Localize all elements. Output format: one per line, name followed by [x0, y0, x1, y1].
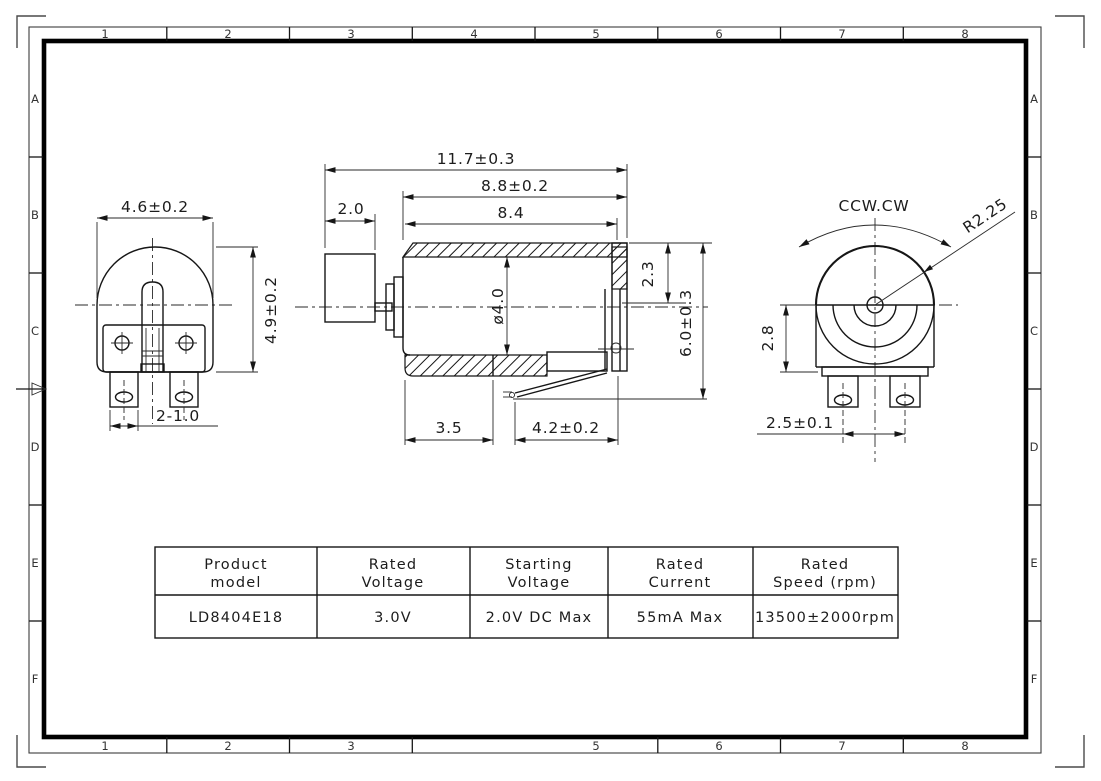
dim-front-legs: 2-1.0	[110, 407, 218, 431]
product-model-value: LD8404E18	[189, 610, 284, 626]
left-centering-mark	[16, 383, 46, 395]
table-header: Rated	[656, 557, 704, 573]
eccentric-weight	[325, 254, 375, 322]
grid-label: 3	[347, 27, 354, 41]
table-header: Rated	[369, 557, 417, 573]
rotation-label: CCW.CW	[838, 197, 909, 215]
dim-side-height-label: 6.0±0.3	[677, 289, 695, 357]
grid-label: D	[31, 440, 40, 454]
grid-label: F	[32, 672, 39, 686]
grid-label: C	[1030, 324, 1038, 338]
table-header: Voltage	[362, 575, 425, 591]
table-header: Rated	[801, 557, 849, 573]
grid-label: 5	[592, 739, 599, 753]
table-header: Current	[649, 575, 712, 591]
trim-mark-top-left	[17, 16, 46, 48]
grid-label: E	[31, 556, 38, 570]
bottom-ruler-ticks	[167, 737, 904, 753]
grid-label: 6	[715, 27, 722, 41]
bracket-hole-left	[111, 332, 133, 354]
grid-label: 7	[838, 739, 845, 753]
rear-view: CCW.CW R2.25 2.8 2.5±0.1	[757, 195, 1015, 462]
technical-drawing: 1 2 3 4 5 6 7 8 1 2 3 5 6 7 8 A B C D E …	[0, 0, 1101, 781]
drawing-sheet: 1 2 3 4 5 6 7 8 1 2 3 5 6 7 8 A B C D E …	[0, 0, 1101, 781]
table-header: Voltage	[508, 575, 571, 591]
dim-front-width: 4.6±0.2	[97, 198, 213, 298]
starting-voltage-value: 2.0V DC Max	[486, 610, 593, 626]
trim-mark-bottom-left	[17, 735, 46, 767]
dim-rear-leg-pitch: 2.5±0.1	[757, 414, 905, 434]
dim-side-height: 6.0±0.3	[677, 243, 703, 399]
dim-rear-leg-pitch-label: 2.5±0.1	[766, 414, 834, 432]
table-header: Product	[204, 557, 267, 573]
grid-label: 6	[715, 739, 722, 753]
spec-table: Product model Rated Voltage Starting Vol…	[155, 547, 898, 638]
dim-side-terminal-label: 2.3	[639, 260, 657, 287]
grid-label: 1	[101, 739, 108, 753]
dim-radius-label: R2.25	[960, 195, 1011, 237]
grid-label: E	[1030, 556, 1037, 570]
grid-label: B	[31, 208, 39, 222]
bottom-ruler-labels: 1 2 3 5 6 7 8	[101, 739, 968, 753]
right-ruler-ticks	[1027, 157, 1041, 621]
grid-label: 5	[592, 27, 599, 41]
grid-label: C	[31, 324, 39, 338]
grid-label: F	[1031, 672, 1038, 686]
dim-side-lead: 4.2±0.2	[515, 376, 618, 445]
grid-label: 8	[961, 739, 968, 753]
dim-front-legs-label: 2-1.0	[156, 407, 200, 425]
sleeve-top-section	[403, 243, 627, 257]
rated-speed-value: 13500±2000rpm	[755, 610, 895, 626]
dim-side-body-label: 8.4	[497, 204, 524, 222]
grid-label: D	[1030, 440, 1039, 454]
grid-label: 7	[838, 27, 845, 41]
side-view: 11.7±0.3 8.8±0.2 8.4 2.0 ø4.0	[295, 150, 712, 445]
grid-label: A	[31, 92, 39, 106]
sleeve-bottom-section	[405, 355, 547, 376]
body-left-edge	[403, 257, 410, 355]
grid-label: 2	[224, 27, 231, 41]
trim-mark-top-right	[1055, 16, 1084, 48]
dim-side-lead-label: 4.2±0.2	[532, 419, 600, 437]
dim-rear-body-height: 2.8	[759, 305, 818, 372]
table-values: LD8404E18 3.0V 2.0V DC Max 55mA Max 1350…	[189, 610, 895, 626]
grid-label: 2	[224, 739, 231, 753]
table-header: model	[210, 575, 261, 591]
grid-label: 3	[347, 739, 354, 753]
dim-side-weight: 2.0	[325, 200, 375, 250]
grid-label: 4	[470, 27, 477, 41]
dim-side-terminal: 2.3	[622, 243, 712, 303]
inner-border	[44, 41, 1026, 737]
dim-side-weight-label: 2.0	[337, 200, 364, 218]
grid-label: B	[1030, 208, 1038, 222]
table-headers: Product model Rated Voltage Starting Vol…	[204, 557, 877, 591]
motor-body-outline	[97, 305, 213, 372]
grid-label: 8	[961, 27, 968, 41]
dim-front-height-label: 4.9±0.2	[262, 276, 280, 344]
grid-label: A	[1030, 92, 1038, 106]
front-view: 4.6±0.2 4.9±0.2 2-1.0	[75, 198, 280, 431]
dim-front-height: 4.9±0.2	[216, 247, 280, 372]
drawing-frame: 1 2 3 4 5 6 7 8 1 2 3 5 6 7 8 A B C D E …	[16, 16, 1084, 767]
dim-side-body: 8.4	[405, 204, 617, 240]
dim-side-sleeve: 3.5	[405, 380, 493, 445]
grid-label: 1	[101, 27, 108, 41]
table-header: Speed (rpm)	[773, 575, 877, 591]
dim-front-width-label: 4.6±0.2	[121, 198, 189, 216]
dim-side-total-label: 11.7±0.3	[437, 150, 516, 168]
rated-current-value: 55mA Max	[637, 610, 724, 626]
dim-side-diameter-label: ø4.0	[489, 287, 507, 324]
outer-border	[29, 27, 1041, 753]
dim-side-total: 11.7±0.3	[325, 150, 627, 248]
rated-voltage-value: 3.0V	[374, 610, 412, 626]
motor-dome-outline	[97, 247, 213, 305]
dim-side-sleeve-label: 3.5	[435, 419, 462, 437]
trim-mark-bottom-right	[1055, 735, 1084, 767]
rear-legs	[828, 376, 920, 443]
dim-side-diameter: ø4.0	[489, 257, 507, 355]
bracket-hole-right	[175, 332, 197, 354]
table-header: Starting	[505, 557, 572, 573]
dim-rear-body-height-label: 2.8	[759, 324, 777, 351]
dim-side-body-cap-label: 8.8±0.2	[481, 177, 549, 195]
